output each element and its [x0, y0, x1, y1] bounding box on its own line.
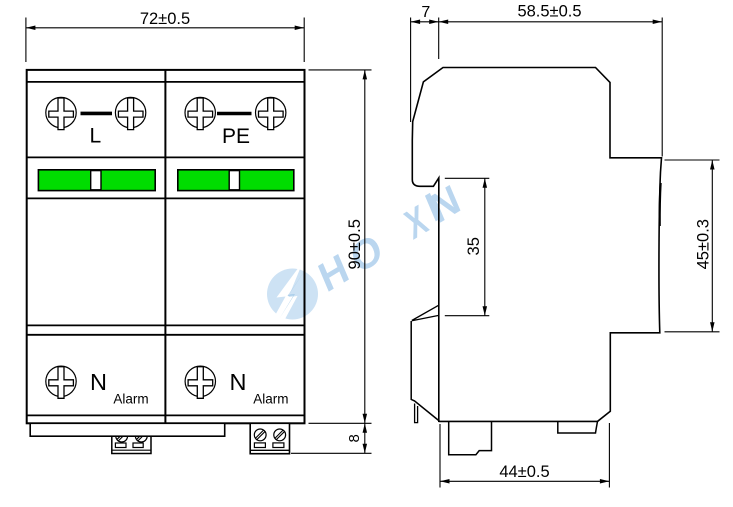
svg-text:Alarm: Alarm	[113, 392, 148, 407]
svg-text:7: 7	[421, 4, 430, 21]
svg-text:58.5±0.5: 58.5±0.5	[517, 3, 581, 21]
svg-text:N: N	[424, 176, 466, 233]
svg-text:L: L	[90, 125, 102, 148]
svg-text:N: N	[230, 369, 247, 395]
svg-text:8: 8	[346, 434, 363, 442]
svg-text:90±0.5: 90±0.5	[346, 219, 364, 269]
svg-text:44±0.5: 44±0.5	[499, 463, 549, 481]
svg-text:35: 35	[465, 237, 483, 255]
svg-text:N: N	[90, 369, 107, 395]
svg-text:Alarm: Alarm	[253, 392, 288, 407]
svg-text:45±0.3: 45±0.3	[694, 219, 712, 269]
svg-text:72±0.5: 72±0.5	[140, 10, 190, 28]
svg-text:PE: PE	[222, 125, 250, 148]
